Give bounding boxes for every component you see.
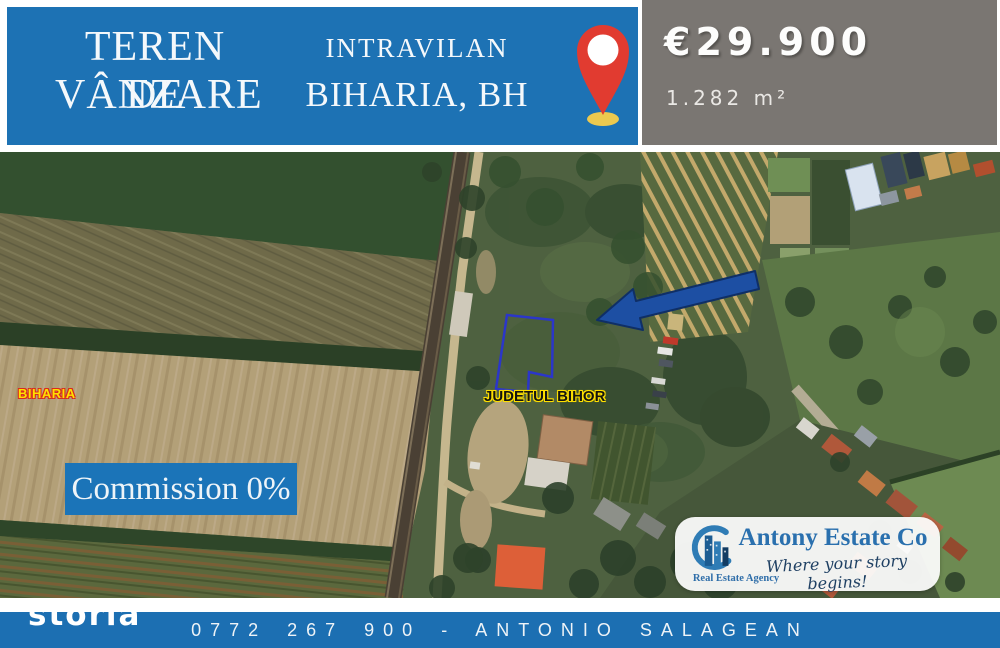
agency-type-label: Real Estate Agency: [677, 573, 795, 584]
contact-bar: 0772 267 900 - ANTONIO SALAGEAN: [0, 612, 1000, 648]
title-banner: TEREN DE VÂNZARE INTRAVILAN BIHARIA, BH: [7, 7, 638, 145]
area-value: 1.282 m²: [666, 86, 789, 110]
title-line2: VÂNZARE: [55, 71, 255, 119]
subtitle-line2: BIHARIA, BH: [269, 75, 565, 115]
location-pin-icon: [573, 21, 633, 133]
county-label: JUDETUL BIHOR: [484, 388, 605, 405]
watermark-logo: storia: [28, 597, 141, 633]
subtitle-line1: INTRAVILAN: [269, 33, 565, 64]
phone-contact: 0772 267 900 - ANTONIO SALAGEAN: [0, 612, 1000, 648]
town-label: BIHARIA: [18, 386, 76, 401]
agency-name: Antony Estate Co: [731, 524, 935, 552]
price-value: €29.900: [664, 20, 872, 64]
price-panel: €29.900 1.282 m²: [642, 0, 997, 145]
listing-ad: TEREN DE VÂNZARE INTRAVILAN BIHARIA, BH …: [0, 0, 1000, 648]
map-section: BIHARIA JUDETUL BIHOR Commission 0% Anto…: [0, 152, 1000, 598]
agency-card: Antony Estate Co Where your story begins…: [675, 517, 940, 591]
buildings-swoosh-icon: [683, 522, 735, 576]
commission-badge: Commission 0%: [65, 463, 297, 515]
